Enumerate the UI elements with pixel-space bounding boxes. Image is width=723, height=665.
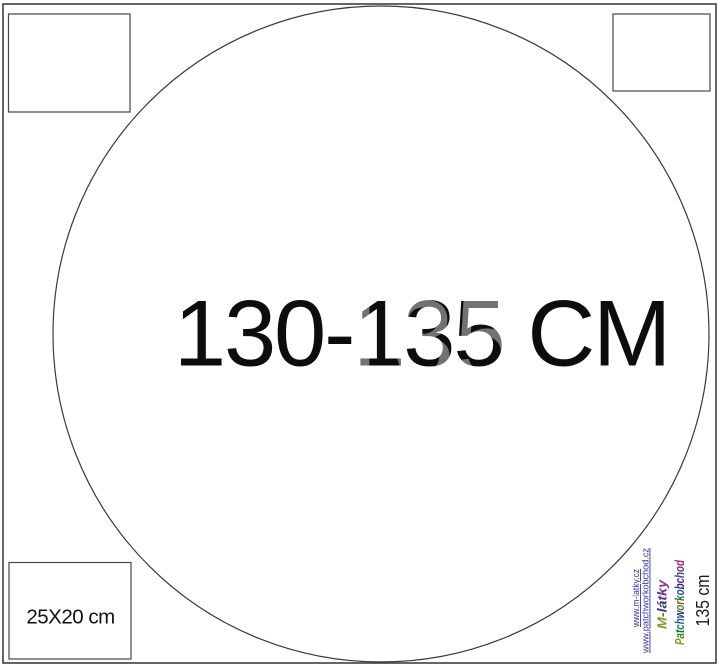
svg-text:25X20 cm: 25X20 cm bbox=[26, 606, 114, 629]
svg-text:www.patchworkobchod.cz: www.patchworkobchod.cz bbox=[641, 548, 651, 655]
svg-text:135: 135 bbox=[332, 278, 516, 401]
svg-text:Patchworkobchod: Patchworkobchod bbox=[673, 560, 687, 645]
svg-text:M-látky: M-látky bbox=[656, 579, 670, 629]
svg-text:www.m-latky.cz: www.m-latky.cz bbox=[631, 569, 641, 628]
svg-text:135 cm: 135 cm bbox=[693, 575, 713, 627]
